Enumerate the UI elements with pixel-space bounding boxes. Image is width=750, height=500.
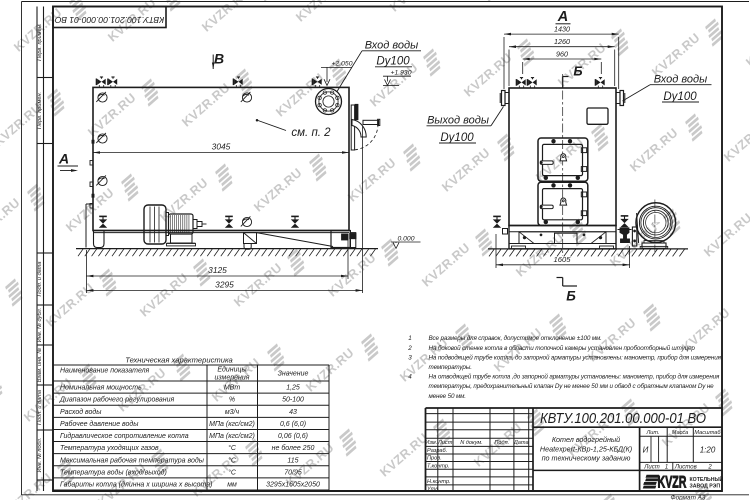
svg-text:50-100: 50-100 (282, 397, 304, 404)
svg-text:Изм.: Изм. (425, 440, 437, 446)
svg-text:МПа (кгс/см2): МПа (кгс/см2) (209, 433, 255, 440)
svg-text:Номинальная мощность: Номинальная мощность (60, 385, 142, 392)
svg-text:1: 1 (665, 465, 668, 471)
svg-text:Б: Б (566, 289, 576, 304)
svg-text:см. п. 2: см. п. 2 (291, 127, 331, 139)
svg-text:не более 250: не более 250 (272, 444, 315, 452)
svg-text:4: 4 (408, 374, 412, 381)
svg-text:ЗАВОД РЭП: ЗАВОД РЭП (690, 483, 721, 489)
svg-text:температуры.: температуры. (429, 364, 472, 371)
svg-text:А: А (58, 151, 69, 167)
svg-text:1430: 1430 (554, 25, 570, 34)
svg-text:1,25: 1,25 (286, 385, 300, 392)
svg-text:Температура воды (вход/выход): Температура воды (вход/выход) (60, 468, 167, 476)
svg-text:1:20: 1:20 (700, 445, 716, 454)
svg-text:1260: 1260 (554, 37, 570, 46)
svg-text:°С: °С (228, 468, 237, 476)
svg-text:Котел водогрейный: Котел водогрейный (552, 435, 620, 444)
svg-text:Гидравлическое сопротивление к: Гидравлическое сопротивление котла (60, 432, 189, 440)
svg-text:3045: 3045 (212, 141, 231, 151)
svg-text:%: % (229, 397, 235, 404)
svg-text:Масса: Масса (672, 430, 689, 436)
svg-text:Лист: Лист (437, 440, 453, 446)
svg-text:3: 3 (408, 355, 412, 362)
svg-text:температуры, предохранительный: температуры, предохранительный клапан Dу… (429, 382, 715, 390)
svg-text:КВТУ.100.201.00.000-01 ВО: КВТУ.100.201.00.000-01 ВО (54, 15, 164, 25)
svg-text:Масштаб: Масштаб (694, 430, 721, 436)
svg-text:Значение: Значение (278, 370, 309, 377)
svg-text:Подп. и дата: Подп. и дата (37, 261, 43, 296)
svg-text:115: 115 (287, 457, 298, 464)
svg-text:измерения: измерения (214, 374, 249, 381)
svg-text:КВТУ.100.201.00.000-01 ВО: КВТУ.100.201.00.000-01 ВО (540, 411, 706, 427)
svg-text:Н.контр.: Н.контр. (427, 479, 451, 485)
svg-text:Единицы: Единицы (217, 365, 247, 373)
svg-text:960: 960 (556, 49, 568, 58)
svg-text:Подп.: Подп. (494, 440, 509, 446)
svg-text:На подводящей трубе котла,: На подводящей трубе котла, до запорной а… (429, 354, 722, 362)
svg-text:по техническому заданию: по техническому заданию (542, 454, 631, 463)
svg-text:0,06 (0,6): 0,06 (0,6) (278, 433, 308, 440)
svg-text:1605: 1605 (554, 255, 572, 264)
svg-text:Формат А3: Формат А3 (671, 494, 706, 500)
svg-text:м3/ч: м3/ч (225, 409, 240, 416)
svg-text:Расход воды: Расход воды (60, 408, 102, 416)
svg-text:Техническая характеристика: Техническая характеристика (125, 355, 233, 364)
svg-text:Вход воды: Вход воды (365, 40, 418, 52)
svg-text:На боковой стенке котла в обла: На боковой стенке котла в области топочн… (429, 344, 696, 352)
svg-text:Heatexpert-КВр-1,25-КБД(К): Heatexpert-КВр-1,25-КБД(К) (540, 444, 632, 453)
svg-text:0.000: 0.000 (397, 235, 414, 242)
svg-text:Пров.: Пров. (427, 456, 442, 462)
svg-text:КОТЕЛЬНЫЙ: КОТЕЛЬНЫЙ (690, 475, 724, 483)
svg-text:+1.930: +1.930 (391, 69, 412, 76)
svg-text:Диапазон рабочего регулировани: Диапазон рабочего регулирования (59, 396, 175, 404)
svg-text:МПа (кгс/см2): МПа (кгс/см2) (209, 421, 255, 428)
svg-text:1: 1 (408, 335, 412, 342)
svg-text:Перв. примен.: Перв. примен. (37, 24, 43, 61)
svg-text:43: 43 (289, 409, 297, 416)
svg-text:2: 2 (707, 465, 712, 471)
svg-text:3295: 3295 (215, 280, 234, 290)
svg-text:KVZR: KVZR (658, 473, 687, 492)
svg-text:менее 50 мм.: менее 50 мм. (429, 393, 466, 400)
svg-text:Dy100: Dy100 (440, 132, 474, 144)
svg-text:70/95: 70/95 (284, 469, 302, 476)
svg-text:МВт: МВт (224, 385, 241, 392)
svg-text:°С: °С (228, 456, 237, 464)
svg-text:Максимальная рабочая температу: Максимальная рабочая температура воды (60, 456, 205, 464)
svg-text:2: 2 (407, 345, 412, 352)
svg-text:Dy100: Dy100 (663, 91, 697, 103)
svg-text:КВЗР: КВЗР (652, 221, 661, 225)
svg-text:+2.050: +2.050 (332, 61, 353, 68)
svg-text:N докум.: N докум. (460, 440, 483, 446)
svg-text:Инв. № подл.: Инв. № подл. (37, 438, 43, 473)
svg-text:Наименование показателя: Наименование показателя (60, 367, 150, 374)
svg-text:Дата: Дата (513, 440, 529, 446)
svg-text:Инв. № дубл.: Инв. № дубл. (37, 308, 43, 342)
svg-text:Лист: Лист (643, 465, 659, 471)
svg-text:Вход воды: Вход воды (654, 73, 707, 85)
svg-text:Dy100: Dy100 (376, 56, 410, 68)
svg-text:3295х1605х2050: 3295х1605х2050 (266, 481, 320, 488)
svg-text:Б: Б (573, 64, 582, 79)
svg-text:Т.контр.: Т.контр. (427, 463, 450, 469)
svg-text:Выход воды: Выход воды (427, 114, 489, 126)
svg-text:Лит.: Лит. (645, 430, 659, 436)
svg-text:Все размеры для справок, допус: Все размеры для справок, допустимое откл… (429, 334, 602, 342)
svg-text:Температура уходящих газов: Температура уходящих газов (60, 444, 159, 452)
svg-text:В: В (214, 51, 224, 67)
svg-text:Рабочее давление воды: Рабочее давление воды (60, 420, 139, 428)
svg-text:мм: мм (227, 481, 237, 488)
svg-text:Габариты котла (длинна х ширин: Габариты котла (длинна х ширина х высота… (60, 480, 213, 488)
svg-text:Листов: Листов (674, 465, 697, 471)
svg-text:Подп. и дата: Подп. и дата (37, 390, 43, 425)
svg-text:0,6 (6,0): 0,6 (6,0) (280, 421, 306, 428)
svg-text:Разраб.: Разраб. (427, 448, 447, 454)
svg-text:Утв.: Утв. (426, 486, 440, 492)
svg-text:На отводящей трубе котла ,до з: На отводящей трубе котла ,до запорной ар… (429, 373, 721, 381)
svg-text:А: А (557, 9, 568, 25)
svg-text:3125: 3125 (208, 265, 227, 275)
svg-text:И: И (643, 445, 649, 454)
svg-text:°С: °С (228, 444, 237, 452)
svg-text:Взам. инв. №: Взам. инв. № (37, 348, 43, 383)
svg-text:Перв. примен.: Перв. примен. (37, 92, 43, 129)
